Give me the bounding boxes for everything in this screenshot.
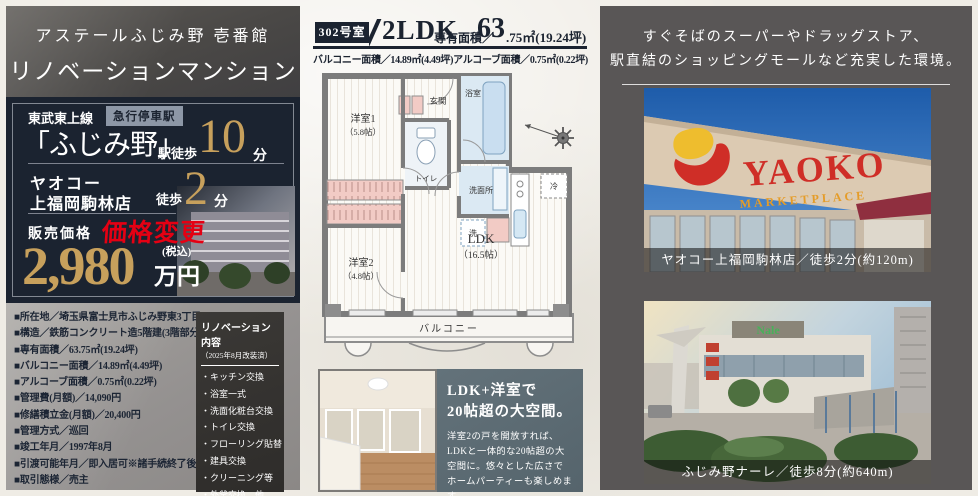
renovation-item: ・クリーニング等 bbox=[201, 470, 279, 487]
room1-size: （5.8帖） bbox=[345, 127, 381, 137]
balcony-alcove-area-line: バルコニー面積／14.89㎡(4.49坪)アルコーブ面積／0.75㎡(0.22坪… bbox=[313, 51, 593, 66]
washroom-label: 洗面所 bbox=[469, 185, 493, 195]
environment-heading-2: 駅直結のショッピングモールなど充実した環境。 bbox=[600, 50, 972, 70]
property-name: アステールふじみ野 壱番館 bbox=[6, 22, 300, 46]
renovation-flyer: アステールふじみ野 壱番館 リノベーションマンション bbox=[0, 0, 978, 496]
area-value-small: .75㎡(19.24坪) bbox=[506, 27, 586, 46]
renovation-item: ・洗面化粧台交換 bbox=[201, 403, 279, 420]
renovation-item: ・建具交換 bbox=[201, 453, 279, 470]
balcony-area bbox=[325, 314, 573, 356]
bathtub-icon bbox=[483, 82, 505, 154]
environment-heading-1: すぐそばのスーパーやドラッグストア、 bbox=[600, 26, 972, 46]
vanity-icon bbox=[493, 168, 507, 210]
feature-caption-panel: LDK+洋室で 20帖超の大空間。 洋室2の戸を開放すれば、LDKと一体的な20… bbox=[437, 369, 583, 492]
heading-divider bbox=[622, 84, 950, 85]
renovation-item: ・浴室一式 bbox=[201, 386, 279, 403]
store-minutes-unit: 分 bbox=[214, 191, 228, 211]
toilet-label: トイレ bbox=[415, 174, 438, 183]
ldk-size: （16.5帖） bbox=[458, 249, 503, 261]
badge-slash-decoration bbox=[369, 19, 383, 46]
yaoko-photo-caption: ヤオコー上福岡駒林店／徒歩2分(約120m) bbox=[644, 248, 931, 272]
floor-plan: 洋室1 （5.8帖） 玄関 浴室 トイレ 洗面所 洗 冷 LDK （16.5帖）… bbox=[313, 68, 593, 370]
station-walk-minutes: 10 bbox=[198, 109, 246, 164]
store-name-2: 上福岡駒林店 bbox=[30, 190, 132, 214]
yaoko-photo: YAOKO MARKETPLACE ヤオコー上福岡駒林店／徒歩2分(約120m) bbox=[644, 88, 931, 272]
station-minutes-unit: 分 bbox=[253, 145, 267, 165]
nale-photo: Nale ふじみ野ナーレ／徒歩8分 bbox=[644, 301, 931, 484]
price-amount: 2,980 bbox=[22, 235, 134, 297]
fridge-label: 冷 bbox=[550, 181, 558, 191]
store-walk-minutes: 2 bbox=[184, 161, 208, 216]
renovation-item: ・フローリング貼替 bbox=[201, 436, 279, 453]
nale-photo-caption: ふじみ野ナーレ／徒歩8分(約640m) bbox=[644, 460, 931, 484]
walk-label-store: 徒歩 bbox=[156, 189, 182, 208]
entrance-label: 玄関 bbox=[429, 96, 446, 106]
renovation-item: ・キッチン交換 bbox=[201, 369, 279, 386]
feature-title-2: 20帖超の大空間。 bbox=[447, 402, 573, 423]
balcony-label: バルコニー bbox=[419, 323, 479, 335]
environment-panel: すぐそばのスーパーやドラッグストア、 駅直結のショッピングモールなど充実した環境… bbox=[600, 6, 972, 490]
renovation-title: リノベーション内容 bbox=[201, 319, 279, 349]
feature-body: 洋室2の戸を開放すれば、LDKと一体的な20帖超の大空間に。悠々とした広さでホー… bbox=[447, 430, 573, 496]
renovation-date: （2025年8月改装済） bbox=[201, 350, 279, 361]
divider-1 bbox=[28, 163, 284, 164]
room1-label: 洋室1 bbox=[351, 112, 376, 125]
price-unit: 万円 bbox=[154, 257, 200, 291]
toilet-icon bbox=[417, 128, 435, 164]
renovation-item: ・トイレ交換 bbox=[201, 419, 279, 436]
kitchen-icon bbox=[511, 174, 529, 246]
renovation-divider bbox=[201, 365, 279, 366]
nale-sign-text: Nale bbox=[756, 323, 780, 337]
renovation-box: リノベーション内容 （2025年8月改装済） ・キッチン交換 ・浴室一式 ・洗面… bbox=[196, 312, 284, 492]
room2-label: 洋室2 bbox=[349, 256, 374, 269]
property-title-block: アステールふじみ野 壱番館 リノベーションマンション bbox=[6, 6, 300, 97]
north-compass-icon bbox=[525, 124, 574, 149]
interior-photo bbox=[318, 369, 437, 492]
ldk-label: LDK bbox=[468, 231, 495, 246]
bath-label: 浴室 bbox=[465, 88, 481, 98]
walk-label-station: 駅徒歩 bbox=[158, 143, 197, 162]
unit-number-badge: 302号室 bbox=[315, 22, 369, 43]
feature-title-1: LDK+洋室で bbox=[447, 381, 573, 402]
renovation-item: ・外釜交換、他 bbox=[201, 487, 279, 496]
price-access-panel: 東武東上線 急行停車駅 「ふじみ野」 駅徒歩 10 分 ヤオコー 上福岡駒林店 … bbox=[6, 97, 300, 303]
area-value-big: 63 bbox=[477, 13, 505, 45]
property-subtitle: リノベーションマンション bbox=[6, 52, 300, 86]
header-underline bbox=[313, 46, 587, 49]
room2-size: （4.8帖） bbox=[343, 271, 379, 281]
